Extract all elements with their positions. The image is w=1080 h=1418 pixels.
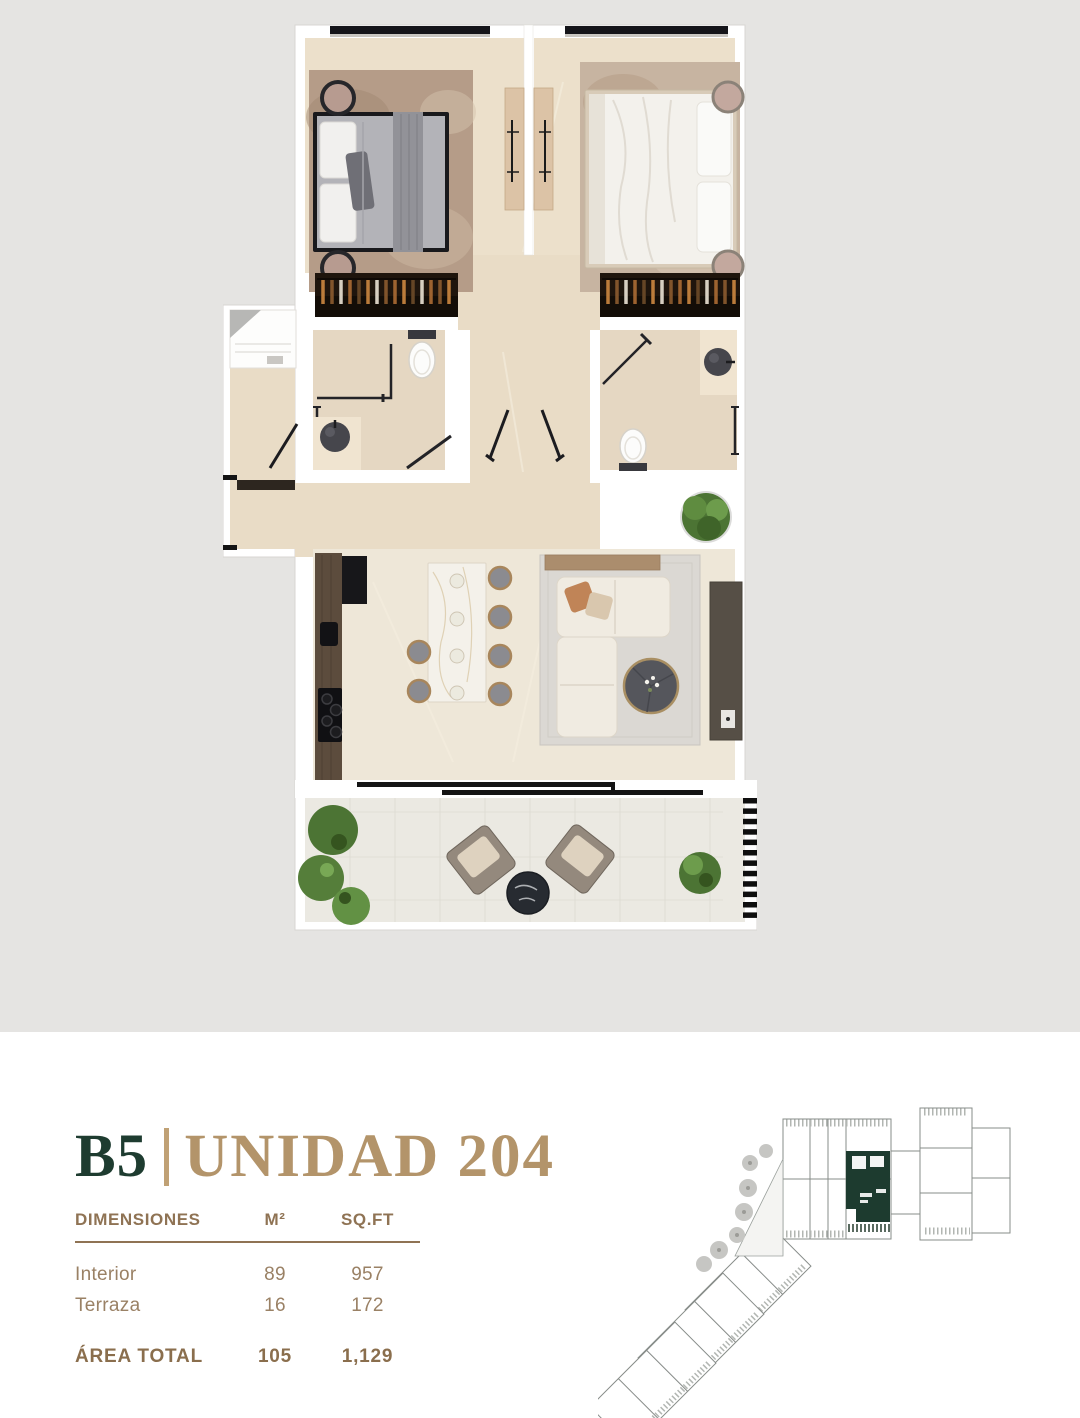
utility-closet xyxy=(230,310,296,368)
dimensions-table-header: DIMENSIONES M² SQ.FT xyxy=(75,1210,420,1243)
row-label: Interior xyxy=(75,1264,235,1286)
row-m2: 16 xyxy=(235,1295,315,1317)
kitchen-tall-unit xyxy=(342,556,367,604)
center-wall xyxy=(524,25,533,255)
kitchen-counter xyxy=(315,553,342,782)
page-title: B5 UNIDAD 204 xyxy=(75,1126,555,1187)
terrace-plant-right xyxy=(679,852,721,894)
header-dimensiones: DIMENSIONES xyxy=(75,1210,235,1230)
row-sqft: 957 xyxy=(315,1264,420,1286)
table-row-total: ÁREA TOTAL 105 1,129 xyxy=(75,1346,420,1368)
tv-console xyxy=(710,582,742,740)
table-row-terraza: Terraza 16 172 xyxy=(75,1295,420,1317)
total-sqft: 1,129 xyxy=(315,1346,420,1368)
sofa-console xyxy=(545,555,660,570)
floor-plan-illustration xyxy=(223,22,757,932)
toilet-1 xyxy=(408,330,436,378)
wardrobe-closet-1 xyxy=(315,273,458,317)
vanity-2 xyxy=(700,330,737,395)
entry-sideboard xyxy=(237,480,295,490)
bedroom-2-pouf-top xyxy=(713,82,743,112)
building-key-plan xyxy=(598,1093,1014,1418)
kitchen-sink xyxy=(320,622,338,646)
entry-door-frame-bottom xyxy=(223,545,237,550)
header-sqft: SQ.FT xyxy=(315,1210,420,1230)
row-sqft: 172 xyxy=(315,1295,420,1317)
unit-info-section: B5 UNIDAD 204 DIMENSIONES M² SQ.FT Inter… xyxy=(0,1032,1080,1418)
bedroom-2 xyxy=(580,62,743,292)
dimensions-table: DIMENSIONES M² SQ.FT Interior 89 957 Ter… xyxy=(75,1210,420,1368)
bedroom-2-bed xyxy=(585,90,737,268)
key-plan-buildings xyxy=(598,1108,1010,1418)
indoor-plant xyxy=(680,491,732,543)
table-row-interior: Interior 89 957 xyxy=(75,1264,420,1286)
title-divider xyxy=(164,1128,169,1186)
hero-section xyxy=(0,0,1080,1032)
total-label: ÁREA TOTAL xyxy=(75,1346,235,1368)
unit-name-label: UNIDAD 204 xyxy=(184,1126,555,1187)
row-label: Terraza xyxy=(75,1295,235,1317)
row-m2: 89 xyxy=(235,1264,315,1286)
terrace-table xyxy=(507,872,549,914)
header-m2: M² xyxy=(235,1210,315,1230)
entry-door-frame-top xyxy=(223,475,237,480)
total-m2: 105 xyxy=(235,1346,315,1368)
vanity-1 xyxy=(313,417,361,470)
toilet-2 xyxy=(619,429,647,471)
bedroom-1-pouf-top xyxy=(322,82,354,114)
block-label: B5 xyxy=(75,1126,148,1187)
wardrobe-closet-2 xyxy=(600,273,740,317)
cooktop xyxy=(318,688,342,742)
coffee-table xyxy=(624,659,678,713)
bedroom-1 xyxy=(306,70,476,292)
kitchen-island xyxy=(428,563,486,702)
bedroom-1-bed xyxy=(313,112,449,252)
